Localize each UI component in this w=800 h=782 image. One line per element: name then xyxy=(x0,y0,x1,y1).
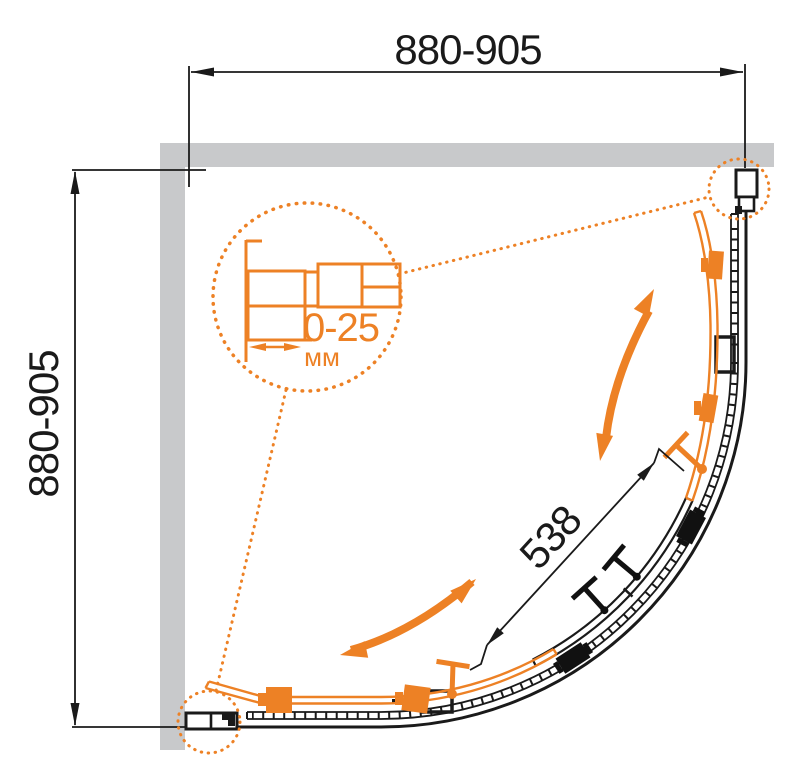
shower-enclosure-diagram: 880-905 880-905 xyxy=(0,0,800,782)
arrowhead-left-icon xyxy=(191,68,214,77)
arrowhead-left-icon xyxy=(338,641,368,663)
wall-left xyxy=(160,143,185,750)
arrowhead-up-icon xyxy=(634,285,662,317)
handle-black-1 xyxy=(604,545,641,581)
arrowhead-up-icon xyxy=(71,171,80,194)
arrowhead-down-icon xyxy=(592,433,613,463)
sliding-door-open-bottom xyxy=(206,649,557,714)
track-hatch xyxy=(252,228,735,716)
detail-leader-bottom xyxy=(216,390,286,691)
wall-profile-bottom xyxy=(186,713,237,729)
wall-profile-top xyxy=(735,170,757,214)
diagram-canvas: 880-905 880-905 xyxy=(0,0,800,782)
adjustment-unit-label: мм xyxy=(304,342,340,372)
dimension-depth xyxy=(71,170,207,727)
door-opening-label: 538 xyxy=(510,497,590,578)
roller-orange xyxy=(395,684,431,713)
handle-black-2 xyxy=(572,577,608,614)
walls xyxy=(160,143,774,750)
detail-callout: 0-25 мм xyxy=(178,159,769,753)
adjust-arrow-right-icon xyxy=(284,343,301,351)
arrowhead-right-icon xyxy=(720,68,743,77)
width-label: 880-905 xyxy=(394,26,541,73)
dimension-width xyxy=(189,64,745,187)
depth-label: 880-905 xyxy=(20,350,67,497)
swing-arrow-bottom xyxy=(338,573,481,664)
roller-orange xyxy=(694,393,718,423)
arrow-body xyxy=(606,311,649,438)
roller-orange xyxy=(258,687,292,713)
track-rail-inner xyxy=(247,214,731,712)
detail-leader-top xyxy=(399,197,709,274)
swing-arrow-top xyxy=(592,285,662,462)
adjust-arrow-left-icon xyxy=(249,343,266,351)
wall-top xyxy=(160,143,774,167)
arrowhead-down-icon xyxy=(71,703,80,726)
profile-notch xyxy=(735,206,742,214)
dimension-door-opening xyxy=(470,449,684,670)
witness-hook-lower xyxy=(470,645,487,670)
track-rail-outer xyxy=(247,214,738,719)
